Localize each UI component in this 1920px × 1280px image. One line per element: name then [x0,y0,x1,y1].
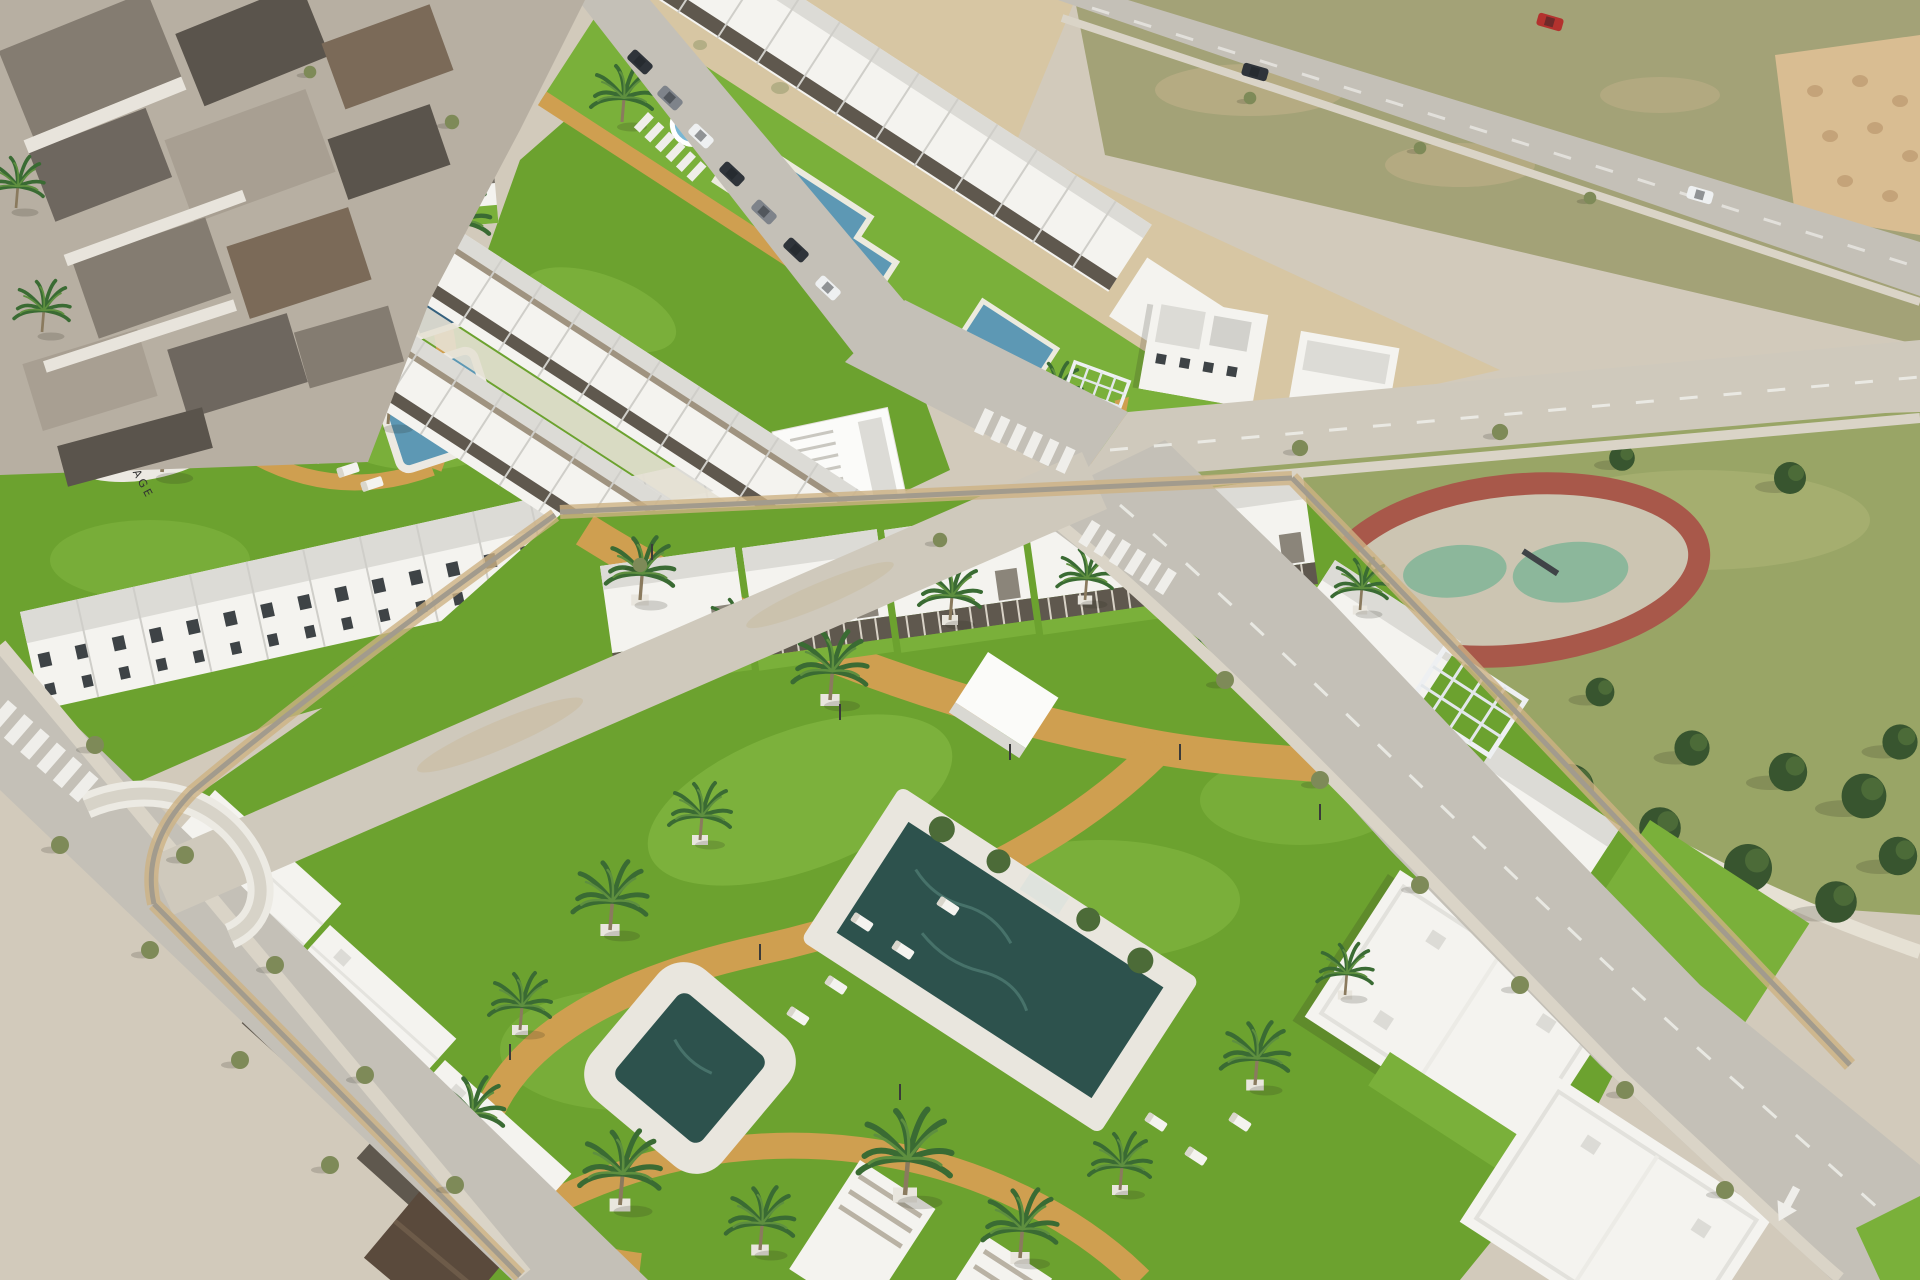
dirt-patch [1600,77,1720,113]
scene-canvas: LLAGE [0,0,1920,1280]
aerial-render-image: LLAGE [0,0,1920,1280]
villa-roof-terrace [1155,304,1206,349]
